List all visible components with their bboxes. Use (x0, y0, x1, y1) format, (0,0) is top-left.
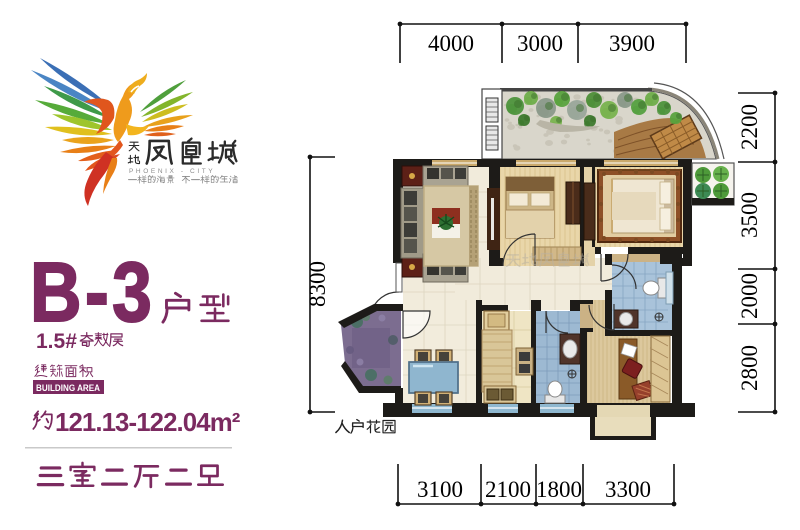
svg-text:2200: 2200 (737, 104, 762, 150)
svg-text:2100: 2100 (485, 477, 531, 502)
svg-text:3300: 3300 (605, 477, 651, 502)
svg-text:121.13-122.04m²: 121.13-122.04m² (55, 409, 241, 437)
svg-text:3100: 3100 (417, 477, 463, 502)
svg-text:PHOENIX - CITY: PHOENIX - CITY (129, 168, 215, 175)
svg-text:3900: 3900 (609, 31, 655, 56)
svg-text:B-3: B-3 (30, 244, 155, 339)
svg-text:4000: 4000 (428, 31, 474, 56)
svg-text:BUILDING AREA: BUILDING AREA (36, 383, 101, 393)
svg-text:2800: 2800 (737, 345, 762, 391)
svg-text:2000: 2000 (737, 273, 762, 319)
svg-text:3000: 3000 (517, 31, 563, 56)
svg-text:1.5#: 1.5# (36, 330, 77, 353)
svg-text:8300: 8300 (305, 261, 330, 307)
svg-text:3500: 3500 (737, 192, 762, 238)
svg-text:1800: 1800 (536, 477, 582, 502)
